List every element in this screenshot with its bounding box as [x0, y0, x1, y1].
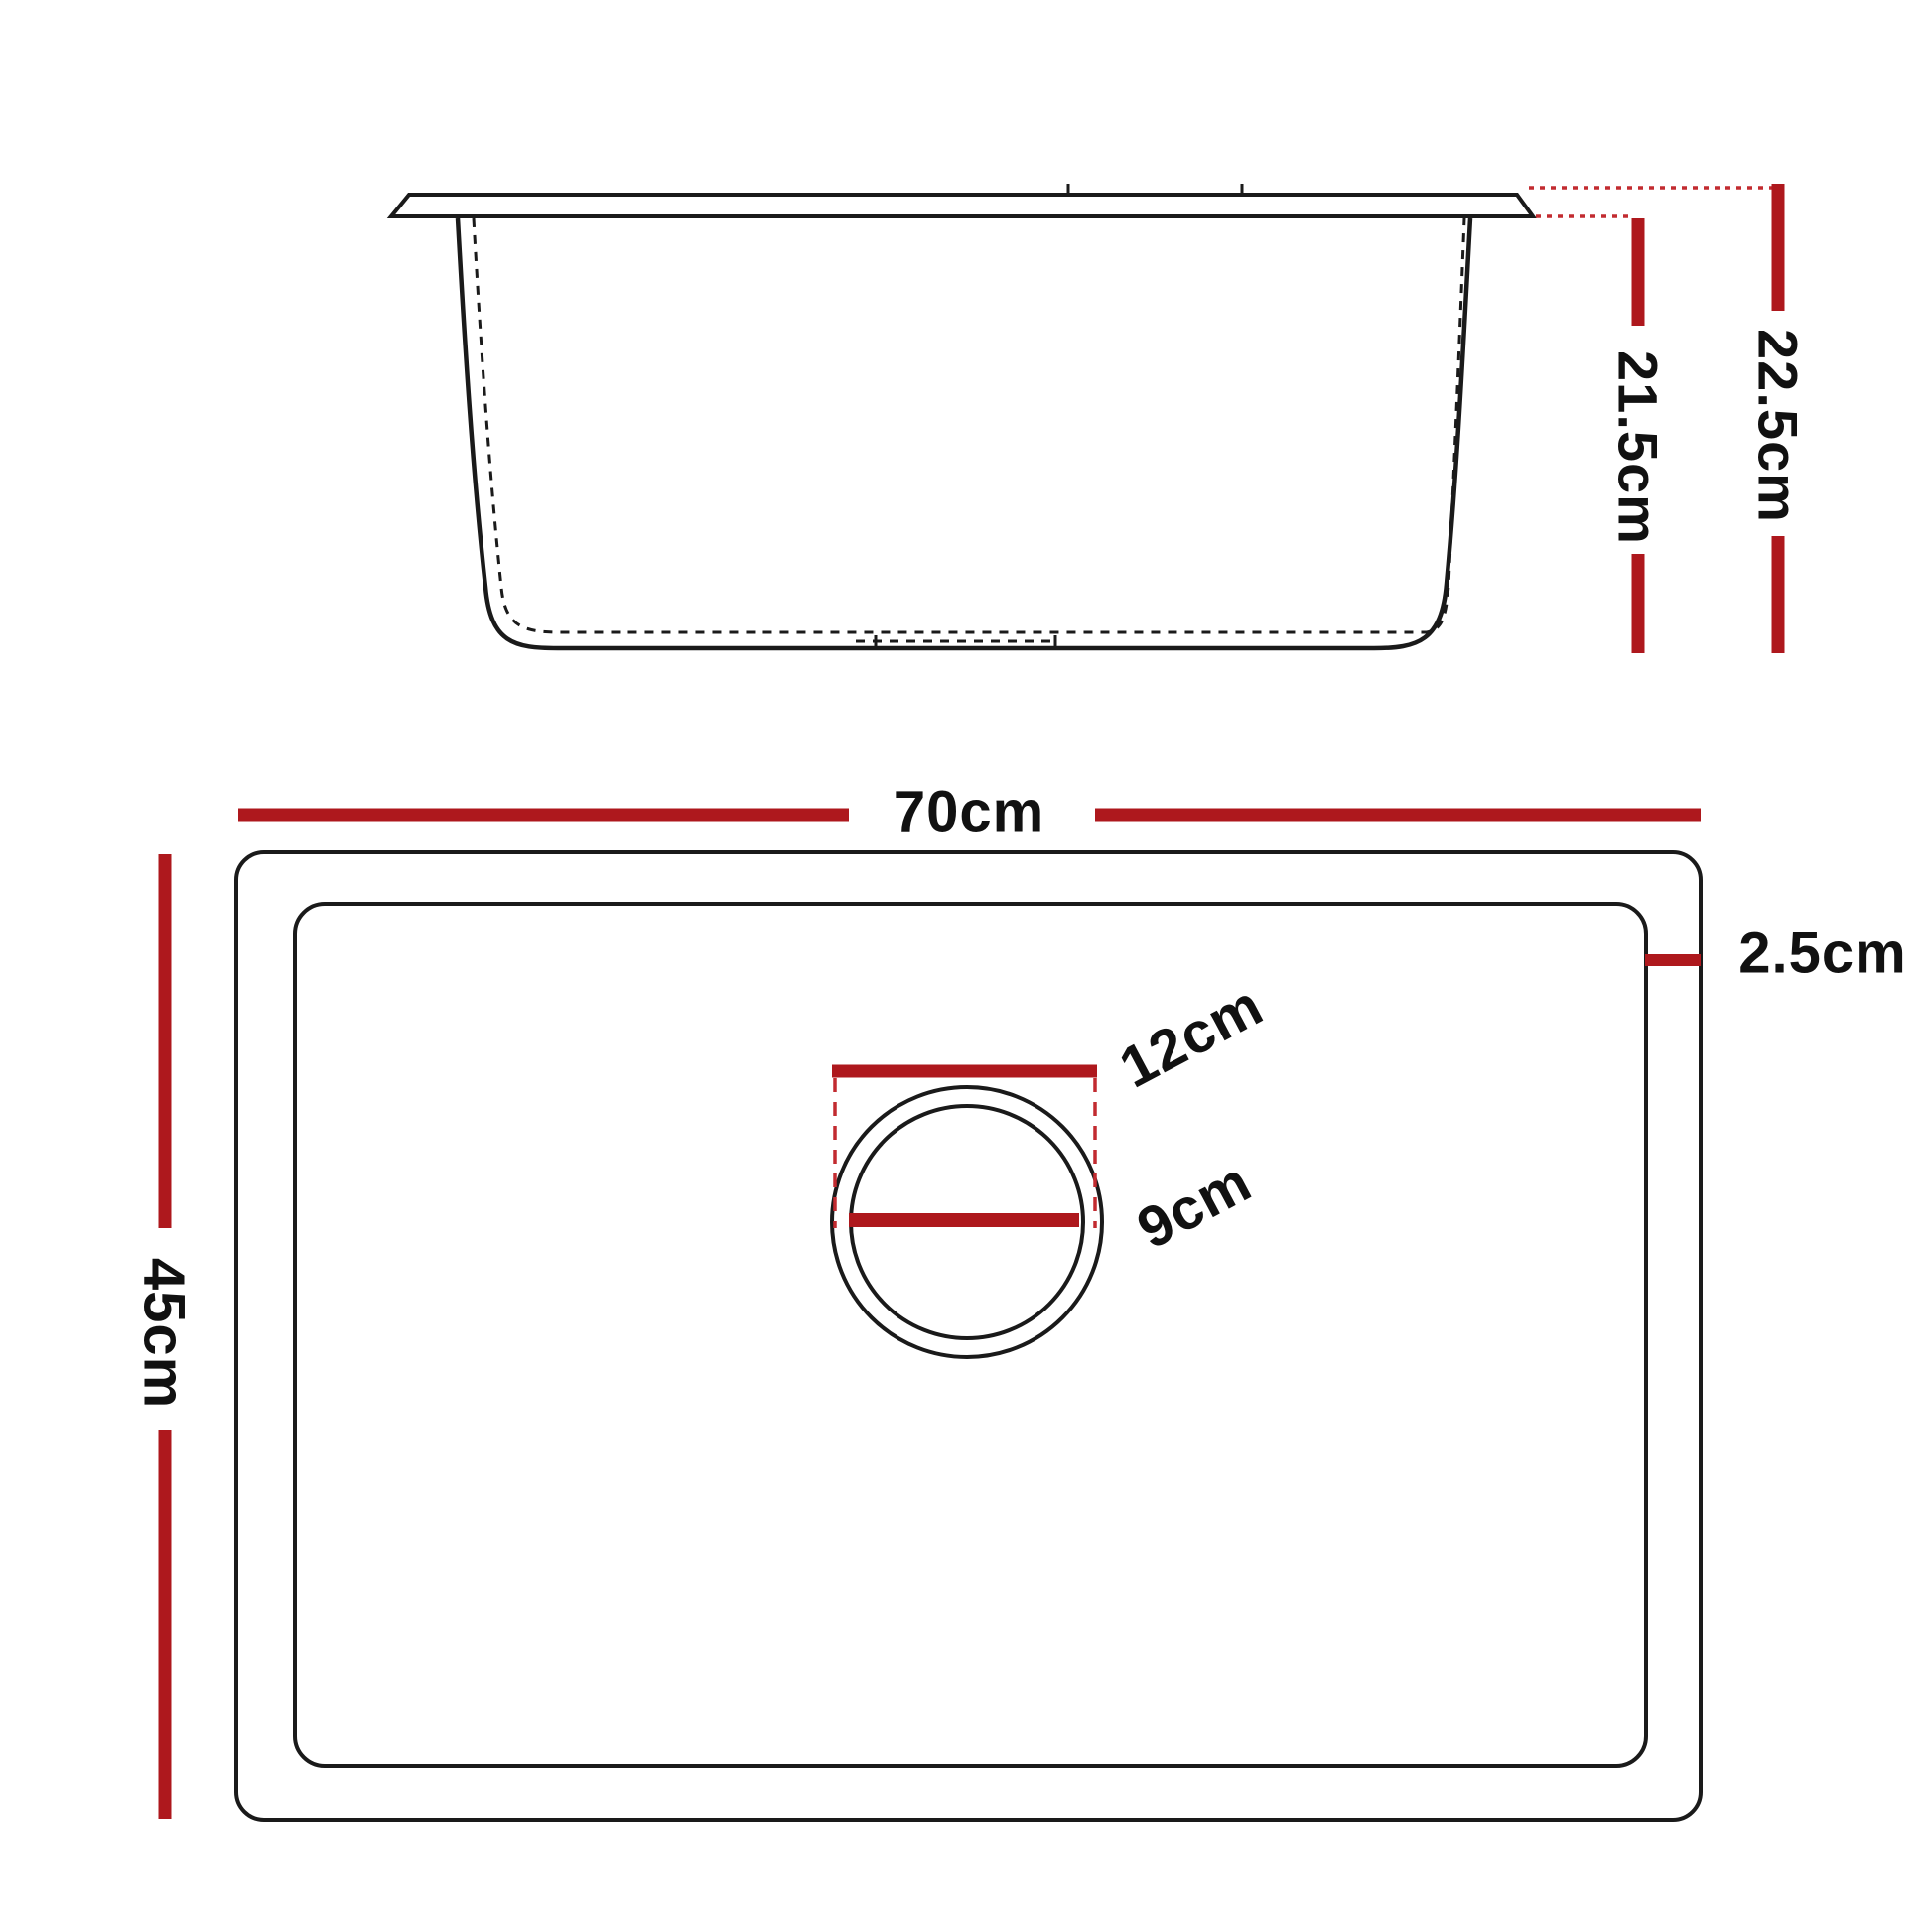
- bowl-depth-label: 21.5cm: [1606, 350, 1671, 545]
- red-dimension-bars: [165, 184, 1778, 1819]
- side-view-bowl-outer-wall: [458, 218, 1470, 648]
- diagram-drawing: [0, 0, 1932, 1932]
- overall-width-label: 70cm: [894, 779, 1044, 846]
- black-linework: [236, 184, 1701, 1820]
- overall-depth-label: 45cm: [131, 1258, 198, 1409]
- top-view-outer-rect: [236, 852, 1701, 1820]
- sink-dimension-diagram: 21.5cm 22.5cm 70cm 45cm 2.5cm 12cm 9cm: [0, 0, 1932, 1932]
- total-depth-label: 22.5cm: [1746, 329, 1811, 523]
- top-view-inner-rect: [295, 904, 1646, 1766]
- side-view-rim-outline: [391, 195, 1533, 216]
- rim-width-label: 2.5cm: [1738, 920, 1906, 987]
- side-view-bowl-inner-wall-dashed: [474, 218, 1464, 632]
